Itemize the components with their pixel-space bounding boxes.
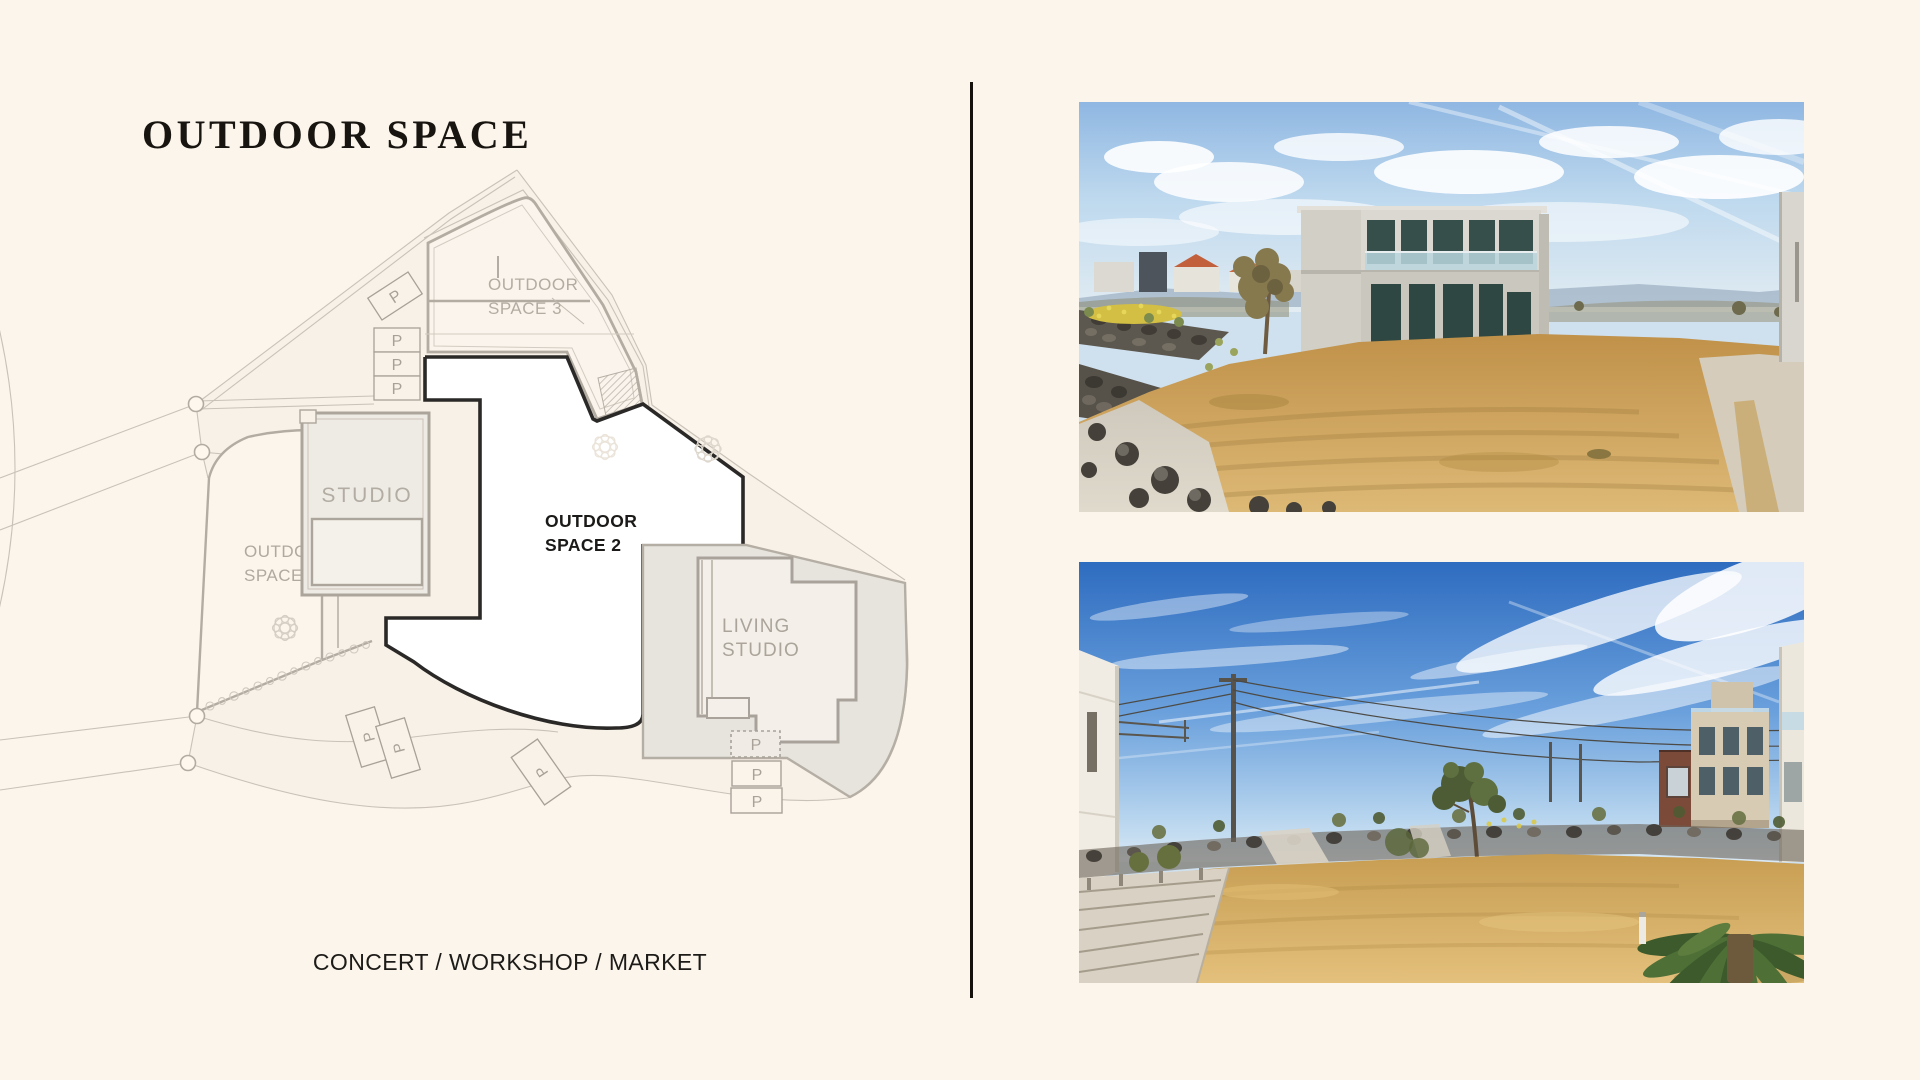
living-studio-label-line2: STUDIO bbox=[722, 640, 800, 661]
site-plan: OUTDOOR SPACE 1 STUDIO P P P P OUTDOOR S… bbox=[0, 150, 960, 890]
photo-lawn-sky bbox=[1079, 562, 1804, 983]
site-plan-drawing: OUTDOOR SPACE 1 STUDIO P P P P OUTDOOR S… bbox=[0, 150, 960, 890]
outdoor-space-2-label-line2: SPACE 2 bbox=[545, 535, 621, 555]
parking-marker: P bbox=[392, 381, 403, 398]
bollard-light bbox=[1639, 912, 1646, 944]
parking-marker: P bbox=[752, 767, 763, 784]
photo-building-lawn bbox=[1079, 102, 1804, 512]
parking-marker: P bbox=[392, 333, 403, 350]
parking-marker: P bbox=[752, 794, 763, 811]
section-divider bbox=[970, 82, 973, 998]
studio-building: STUDIO bbox=[300, 410, 429, 595]
right-building bbox=[1779, 192, 1804, 362]
outdoor-space-3-label-line2: SPACE 3 bbox=[488, 299, 562, 318]
living-studio-label-line1: LIVING bbox=[722, 616, 790, 637]
photo-building-lawn-art bbox=[1079, 102, 1804, 512]
outdoor-space-3-label-line1: OUTDOOR bbox=[488, 275, 578, 294]
outdoor-space-2-label-line1: OUTDOOR bbox=[545, 511, 637, 531]
studio-label: STUDIO bbox=[321, 484, 412, 507]
parking-marker: P bbox=[392, 357, 403, 374]
photo-lawn-sky-art bbox=[1079, 562, 1804, 983]
caption: CONCERT / WORKSHOP / MARKET bbox=[280, 949, 740, 976]
parking-marker: P bbox=[751, 737, 762, 754]
parking-stack: P P P bbox=[374, 328, 420, 400]
